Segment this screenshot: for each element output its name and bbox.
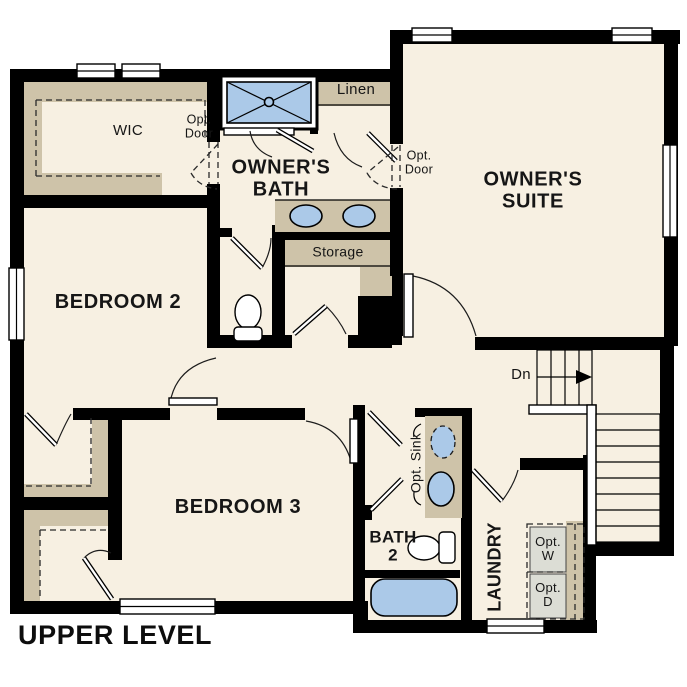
stair-railing	[587, 405, 596, 545]
label-opt-door-suite: Opt. Door	[405, 150, 433, 177]
bathtub	[371, 579, 457, 616]
chase	[358, 296, 402, 345]
room-label-laundry: LAUNDRY	[485, 522, 504, 611]
room-label-owners-suite: OWNER'S SUITE	[484, 169, 583, 212]
window	[487, 619, 544, 633]
stair-railing	[529, 405, 596, 414]
floor-plan: WIC Opt. Door OWNER'S BATH Linen Opt. Do…	[0, 0, 687, 687]
plan-title: UPPER LEVEL	[18, 621, 212, 650]
label-opt-door-wic: Opt. Door	[185, 114, 213, 141]
window	[663, 145, 677, 237]
label-opt-washer: Opt. W	[535, 535, 561, 563]
window	[612, 28, 652, 42]
shower-drain-icon	[265, 98, 274, 107]
sink-icon	[428, 472, 454, 506]
window	[9, 268, 24, 340]
window	[120, 599, 215, 614]
window	[122, 64, 160, 78]
label-opt-sink: Opt. Sink	[408, 433, 423, 493]
label-opt-dryer: Opt. D	[535, 581, 561, 609]
label-storage: Storage	[312, 244, 363, 259]
sink-icon	[343, 205, 375, 227]
owners-bath-vanity	[275, 200, 390, 232]
floor-plan-drawing	[0, 0, 687, 687]
window	[412, 28, 452, 42]
toilet	[234, 295, 262, 341]
label-stairs-down: Dn	[511, 367, 531, 383]
sink-icon	[290, 205, 322, 227]
optional-sink-icon	[431, 426, 455, 458]
shower	[221, 76, 317, 135]
room-label-owners-bath: OWNER'S BATH	[232, 157, 331, 200]
room-label-bath-2: BATH 2	[369, 529, 416, 566]
room-label-wic-top: WIC	[113, 123, 143, 139]
room-label-bedroom-2: BEDROOM 2	[55, 292, 182, 314]
label-linen: Linen	[337, 82, 375, 98]
window	[77, 64, 115, 78]
chase-shelf	[362, 276, 392, 296]
room-label-bedroom-3: BEDROOM 3	[175, 497, 302, 519]
